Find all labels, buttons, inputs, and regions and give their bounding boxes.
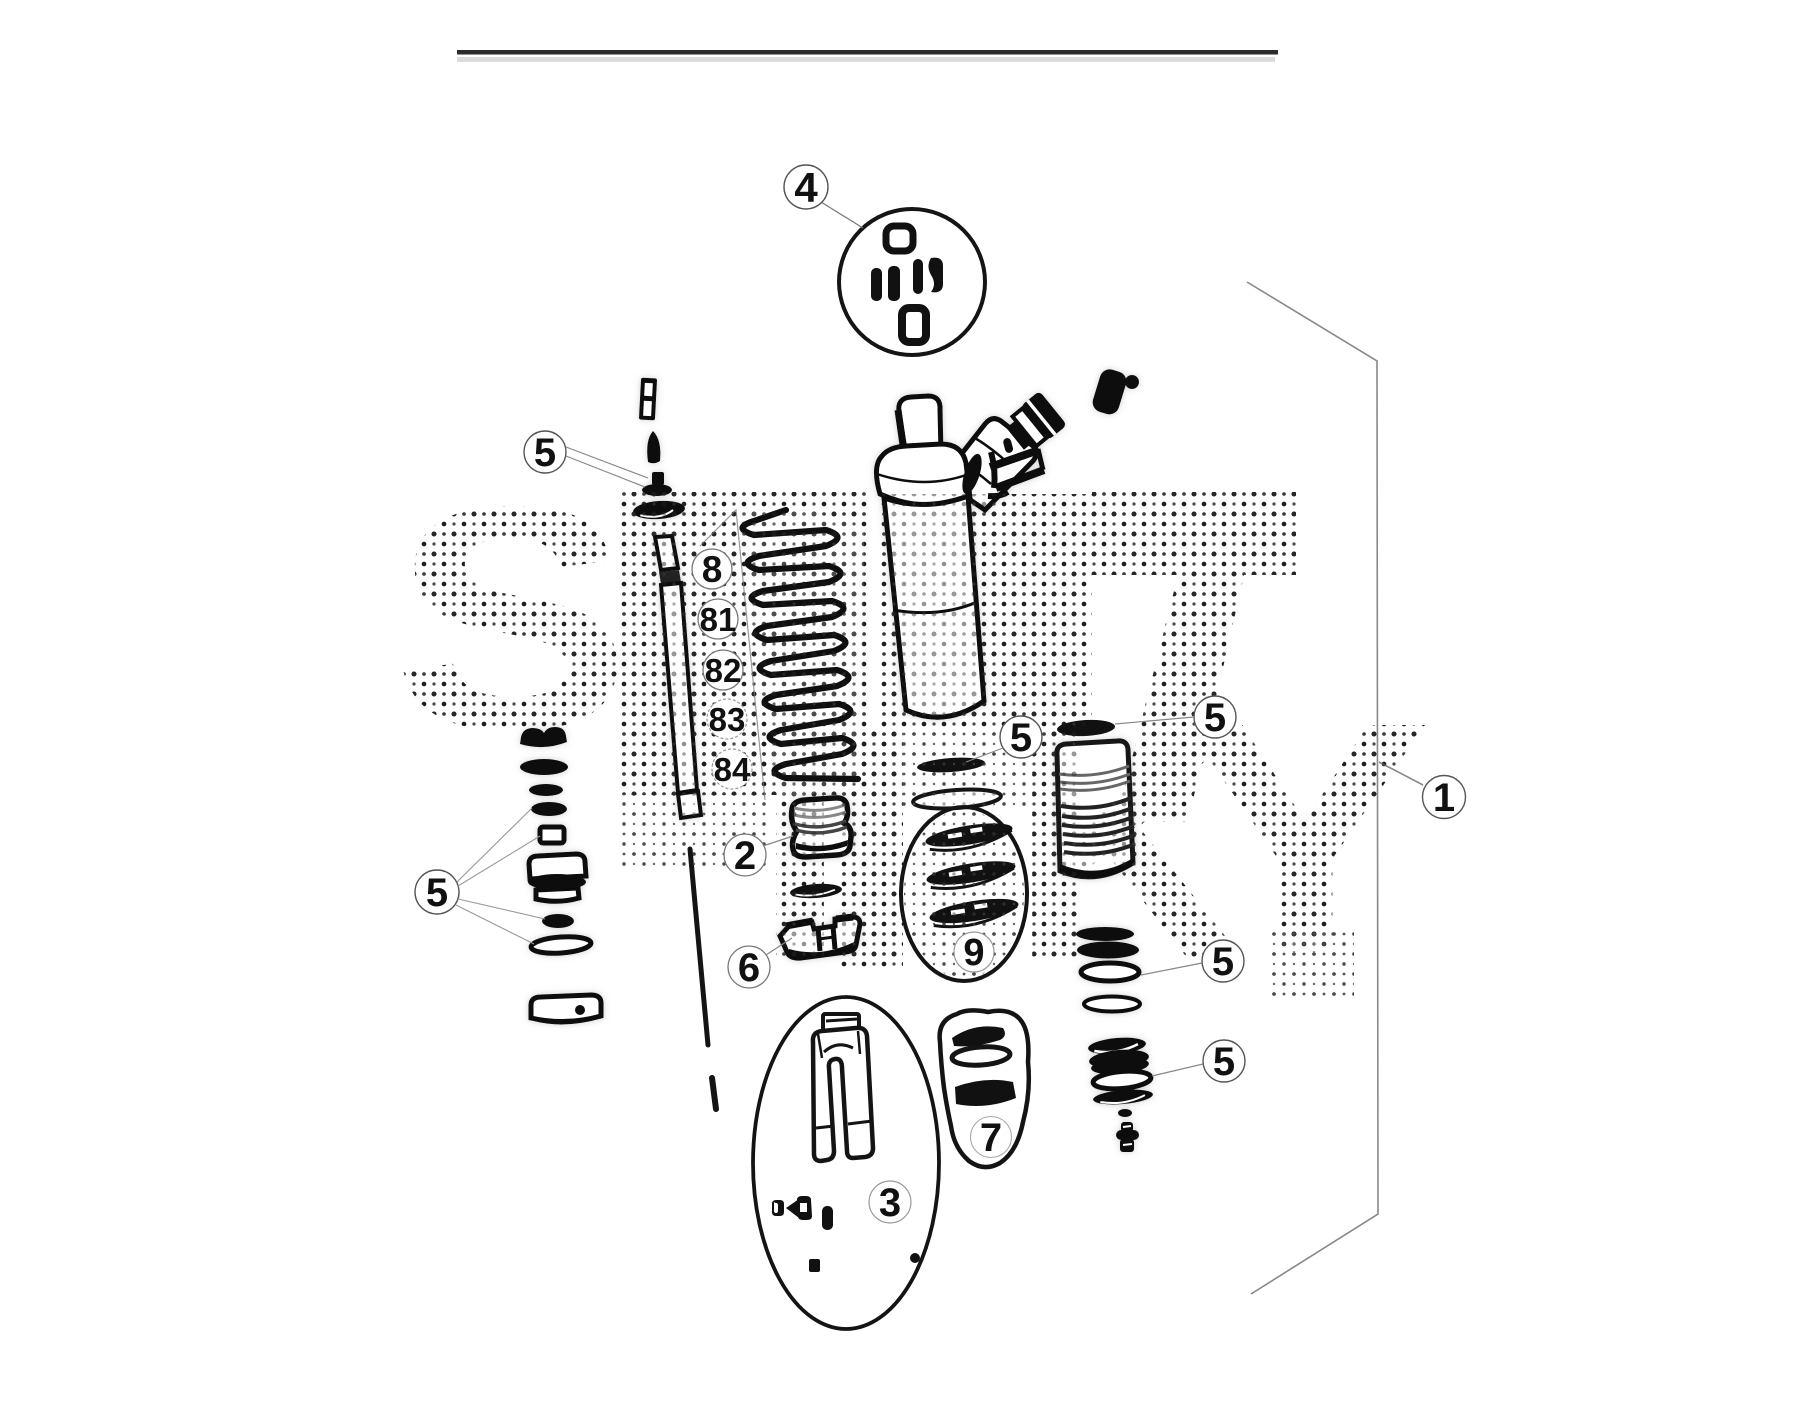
svg-text:81: 81 (700, 601, 737, 638)
svg-text:5: 5 (1204, 696, 1226, 740)
svg-text:1: 1 (1433, 776, 1455, 820)
svg-text:84: 84 (714, 751, 751, 788)
svg-text:4: 4 (794, 164, 818, 211)
svg-text:6: 6 (738, 946, 760, 990)
svg-text:82: 82 (705, 652, 742, 689)
svg-text:7: 7 (980, 1116, 1002, 1160)
svg-text:2: 2 (734, 834, 756, 878)
svg-text:9: 9 (963, 932, 984, 974)
svg-text:5: 5 (534, 431, 556, 475)
svg-text:5: 5 (1010, 716, 1032, 760)
svg-text:8: 8 (702, 549, 723, 590)
svg-text:5: 5 (426, 871, 448, 915)
svg-text:83: 83 (709, 701, 746, 738)
svg-text:3: 3 (879, 1181, 901, 1225)
svg-text:5: 5 (1212, 940, 1234, 984)
svg-text:5: 5 (1213, 1040, 1235, 1084)
